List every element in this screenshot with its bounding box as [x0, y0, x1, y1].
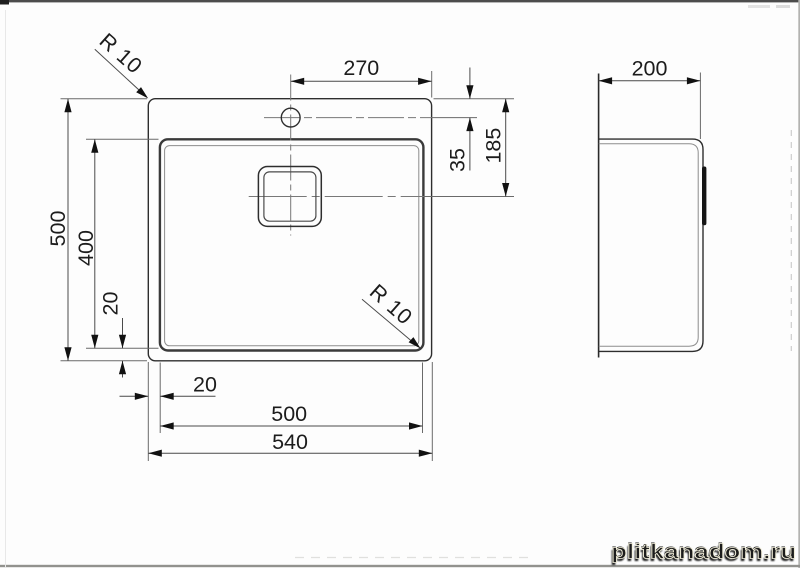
svg-text:plitkanadom.ru: plitkanadom.ru: [611, 541, 796, 563]
svg-text:400: 400: [74, 230, 98, 266]
svg-text:200: 200: [632, 57, 668, 81]
svg-text:185: 185: [482, 128, 506, 164]
svg-text:20: 20: [193, 373, 217, 397]
svg-text:35: 35: [446, 148, 470, 172]
svg-text:540: 540: [272, 430, 308, 454]
svg-text:270: 270: [343, 56, 379, 80]
svg-text:20: 20: [99, 292, 123, 316]
svg-text:500: 500: [46, 211, 70, 247]
svg-text:500: 500: [271, 402, 307, 426]
